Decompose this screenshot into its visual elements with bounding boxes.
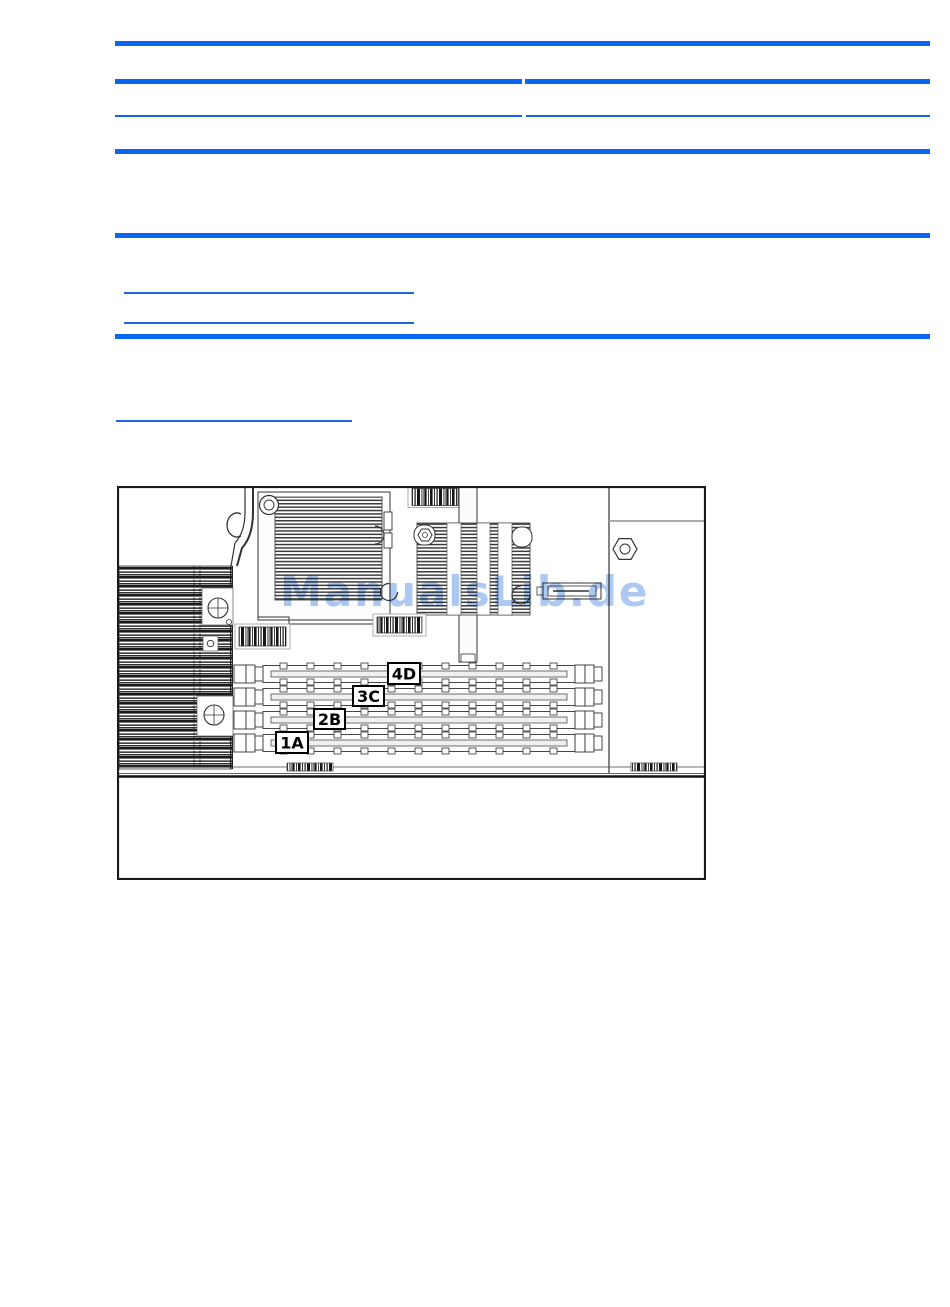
horizontal-rule-2b: [525, 79, 930, 84]
left-heatsink: [119, 566, 233, 769]
link-underline-2[interactable]: [124, 322, 414, 324]
horizontal-rule-1: [115, 41, 930, 46]
edge-connector: [537, 583, 601, 599]
link-underline-1[interactable]: [124, 292, 414, 294]
horizontal-rule-3b: [526, 115, 930, 117]
barcode-label-left: [235, 624, 290, 649]
barcode-label-mid: [373, 614, 426, 636]
manual-page: 4D 3C 2B 1A ManualsLib.de: [0, 0, 950, 1307]
dimm-slot-row-3c: [234, 686, 602, 708]
barcode-label-top: [408, 487, 461, 508]
horizontal-rule-2a: [115, 79, 522, 84]
link-underline-3[interactable]: [116, 420, 352, 422]
dimm-label-1a: 1A: [280, 734, 304, 753]
dimm-slot-row-2b: [234, 709, 602, 731]
screw-icon: [260, 496, 279, 515]
motherboard-diagram: 4D 3C 2B 1A: [117, 486, 706, 880]
dimm-locations-figure: 4D 3C 2B 1A ManualsLib.de: [117, 486, 706, 880]
cpu-heatsink: [258, 492, 398, 624]
dimm-label-3c: 3C: [357, 687, 380, 706]
horizontal-rule-6: [115, 334, 930, 339]
horizontal-rule-3a: [115, 115, 522, 117]
dimm-label-4d: 4D: [392, 665, 416, 684]
secondary-heatsink: [414, 523, 532, 615]
hex-screw-icon: [418, 529, 432, 541]
dimm-label-2b: 2B: [318, 710, 341, 729]
horizontal-rule-4: [115, 149, 930, 154]
horizontal-rule-5: [115, 233, 930, 238]
